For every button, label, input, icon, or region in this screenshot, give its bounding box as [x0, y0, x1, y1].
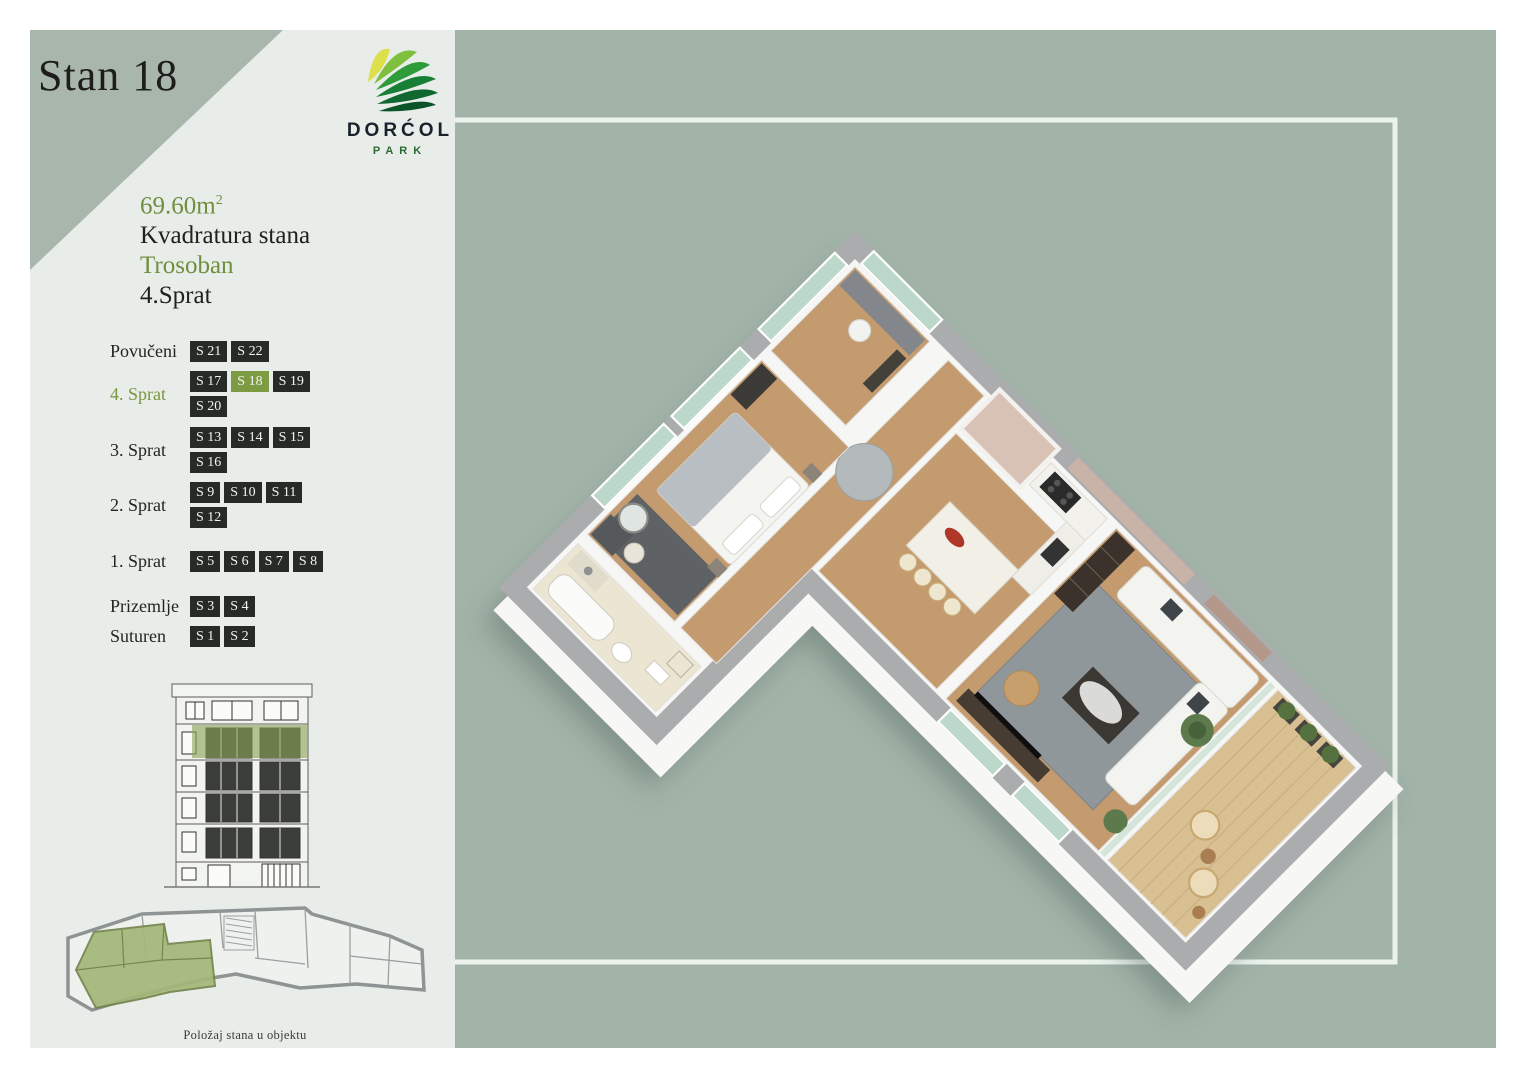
unit-chip-s12[interactable]: S 12 — [190, 507, 227, 528]
unit-chip-group: S 17S 18S 19S 20 — [188, 369, 330, 419]
area-superscript: 2 — [216, 193, 223, 208]
apartment-type: Trosoban — [140, 251, 310, 281]
logo-name: DORĆOL — [330, 120, 455, 142]
unit-chip-group: S 1S 2 — [188, 624, 330, 649]
unit-chip-group: S 13S 14S 15S 16 — [188, 425, 330, 475]
unit-chip-group: S 3S 4 — [188, 594, 330, 619]
floor-row-4-sprat: 4. SpratS 17S 18S 19S 20 — [30, 368, 455, 420]
apartment-info: 69.60m2 Kvadratura stana Trosoban 4.Spra… — [140, 186, 310, 311]
unit-chip-s6[interactable]: S 6 — [224, 551, 254, 572]
unit-chip-group: S 21S 22 — [188, 339, 330, 364]
unit-chip-s16[interactable]: S 16 — [190, 452, 227, 473]
floor-row-1-sprat: 1. SpratS 5S 6S 7S 8 — [30, 535, 455, 587]
building-elevation-drawing — [162, 672, 322, 898]
floor-label: Prizemlje — [110, 596, 188, 617]
floor-row-2-sprat: 2. SpratS 9S 10S 11S 12 — [30, 479, 455, 531]
unit-chip-s7[interactable]: S 7 — [259, 551, 289, 572]
floorplan-panel — [455, 30, 1496, 1048]
elevation-floor-highlight — [192, 725, 308, 758]
floor-row-3-sprat: 3. SpratS 13S 14S 15S 16 — [30, 424, 455, 476]
unit-chip-s5[interactable]: S 5 — [190, 551, 220, 572]
unit-chip-s19[interactable]: S 19 — [273, 371, 310, 392]
floor-label: 4. Sprat — [110, 384, 188, 405]
elevation-roof-slab — [172, 684, 312, 697]
unit-chip-s18[interactable]: S 18 — [231, 371, 268, 392]
floor-row-prizemlje: PrizemljeS 3S 4 — [30, 593, 455, 619]
unit-chip-s3[interactable]: S 3 — [190, 596, 220, 617]
floor-label: 3. Sprat — [110, 440, 188, 461]
floor-row-povu-eni: PovučeniS 21S 22 — [30, 338, 455, 364]
building-footprint-drawing — [50, 898, 440, 1028]
floor-label: Suturen — [110, 626, 188, 647]
unit-chip-s4[interactable]: S 4 — [224, 596, 254, 617]
unit-chip-s15[interactable]: S 15 — [273, 427, 310, 448]
floor-row-suturen: SuturenS 1S 2 — [30, 623, 455, 649]
apartment-area: 69.60m2 — [140, 186, 310, 221]
unit-chip-s17[interactable]: S 17 — [190, 371, 227, 392]
dorcol-park-logo-icon — [354, 40, 446, 118]
unit-chip-s22[interactable]: S 22 — [231, 341, 268, 362]
unit-chip-group: S 5S 6S 7S 8 — [188, 549, 330, 574]
apartment-area-label: Kvadratura stana — [140, 221, 310, 251]
footprint-caption: Položaj stana u objektu — [50, 1028, 440, 1043]
floor-plan-3d — [455, 30, 1496, 1048]
unit-chip-s14[interactable]: S 14 — [231, 427, 268, 448]
unit-chip-s11[interactable]: S 11 — [266, 482, 303, 503]
unit-chip-s1[interactable]: S 1 — [190, 626, 220, 647]
unit-chip-s8[interactable]: S 8 — [293, 551, 323, 572]
info-sidebar: Stan 18 DORĆOL PARK 69.60m2 Kvadratura s… — [30, 30, 455, 1048]
unit-chip-s2[interactable]: S 2 — [224, 626, 254, 647]
floor-label: Povučeni — [110, 341, 188, 362]
floor-label: 2. Sprat — [110, 495, 188, 516]
apartment-floor: 4.Sprat — [140, 281, 310, 311]
dorcol-park-logo: DORĆOL PARK — [330, 40, 455, 157]
unit-chip-s9[interactable]: S 9 — [190, 482, 220, 503]
floor-label: 1. Sprat — [110, 551, 188, 572]
unit-chip-s10[interactable]: S 10 — [224, 482, 261, 503]
unit-chip-group: S 9S 10S 11S 12 — [188, 480, 330, 530]
page-title: Stan 18 — [38, 50, 178, 101]
unit-chip-s13[interactable]: S 13 — [190, 427, 227, 448]
logo-subtitle: PARK — [330, 145, 455, 157]
unit-chip-s20[interactable]: S 20 — [190, 396, 227, 417]
unit-chip-s21[interactable]: S 21 — [190, 341, 227, 362]
